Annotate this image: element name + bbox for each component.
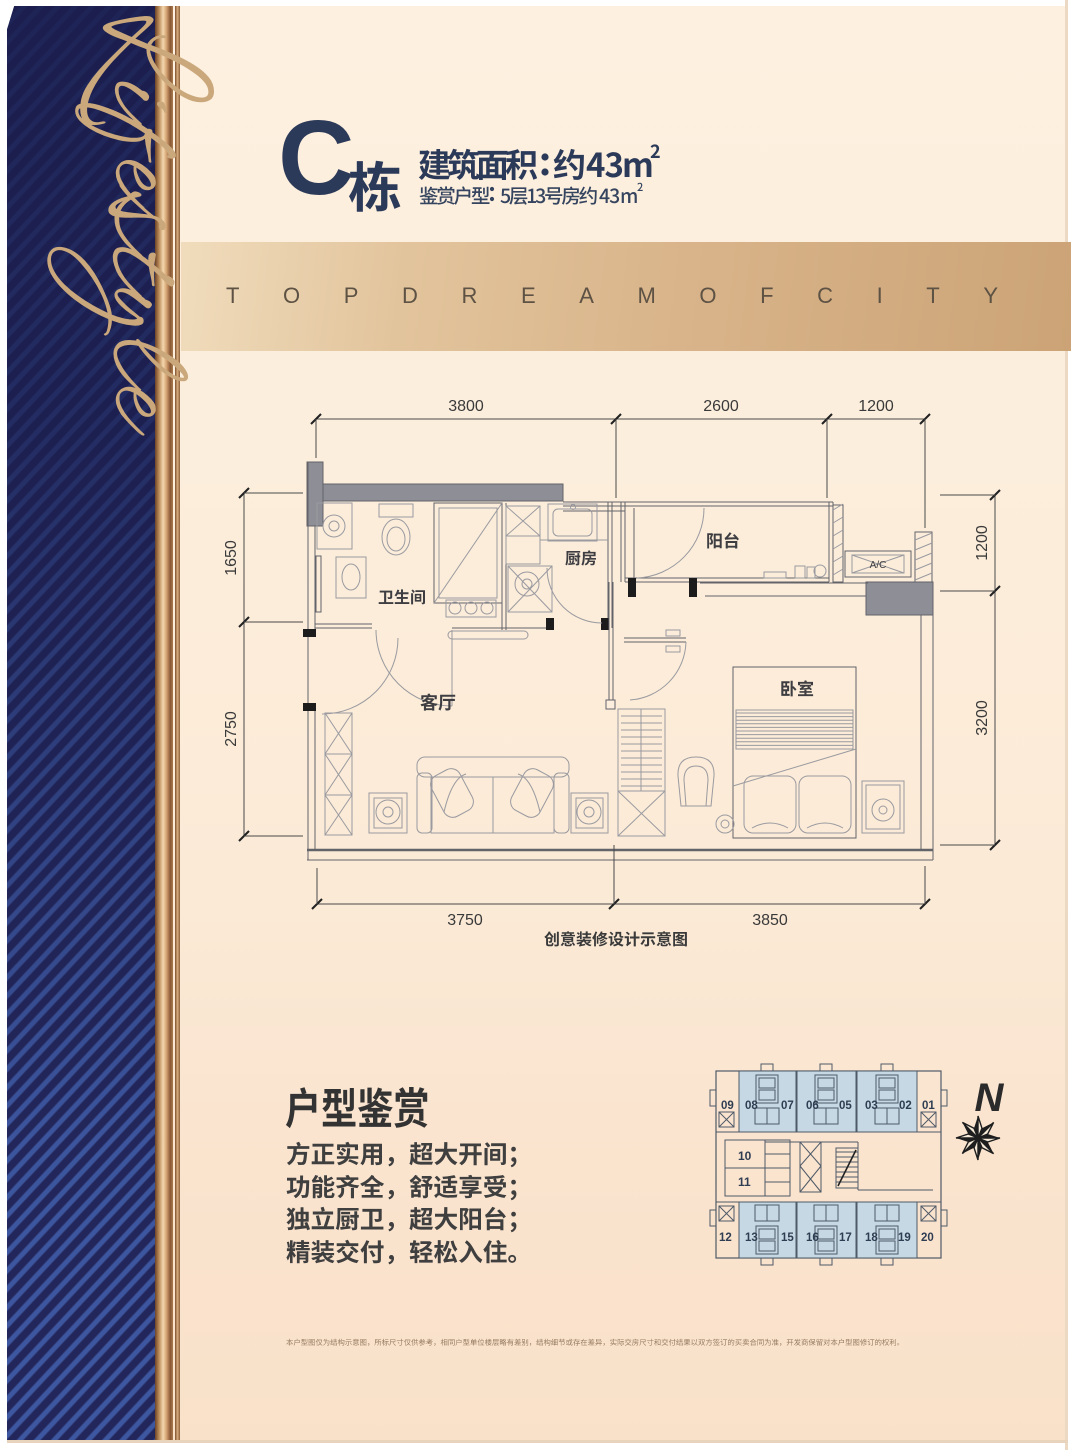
svg-text:N: N [975, 1076, 1005, 1120]
